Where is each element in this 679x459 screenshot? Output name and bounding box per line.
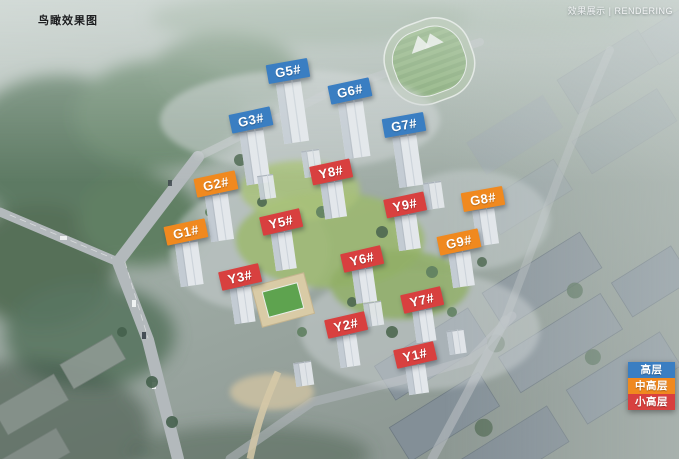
legend-item-mid_high: 中高层 [628, 378, 675, 394]
building-label-g2: G2# [193, 170, 238, 197]
building-label-g1: G1# [163, 218, 208, 245]
building-label-y1: Y1# [393, 341, 437, 369]
building-labels-layer: G5#G6#G3#G7#Y8#G2#G8#Y9#Y5#G1#G9#Y6#Y3#Y… [0, 0, 679, 459]
building-label-y9: Y9# [383, 191, 427, 218]
rendering-canvas: 鸟瞰效果图 效果展示 | RENDERING G5#G6#G3#G7#Y8#G2… [0, 0, 679, 459]
building-label-g9: G9# [436, 228, 481, 255]
legend: 高层中高层小高层 [628, 362, 675, 410]
legend-item-high: 高层 [628, 362, 675, 378]
building-label-y2: Y2# [324, 311, 368, 339]
building-label-g8: G8# [461, 186, 506, 212]
building-label-g3: G3# [228, 106, 273, 133]
building-label-y3: Y3# [218, 263, 262, 291]
building-label-g5: G5# [266, 58, 311, 84]
legend-item-small_high: 小高层 [628, 394, 675, 410]
building-label-y8: Y8# [309, 158, 353, 185]
building-label-g6: G6# [327, 77, 372, 104]
building-label-y7: Y7# [400, 286, 444, 314]
building-label-y6: Y6# [340, 245, 384, 273]
building-label-g7: G7# [382, 112, 427, 138]
building-label-y5: Y5# [259, 208, 303, 236]
